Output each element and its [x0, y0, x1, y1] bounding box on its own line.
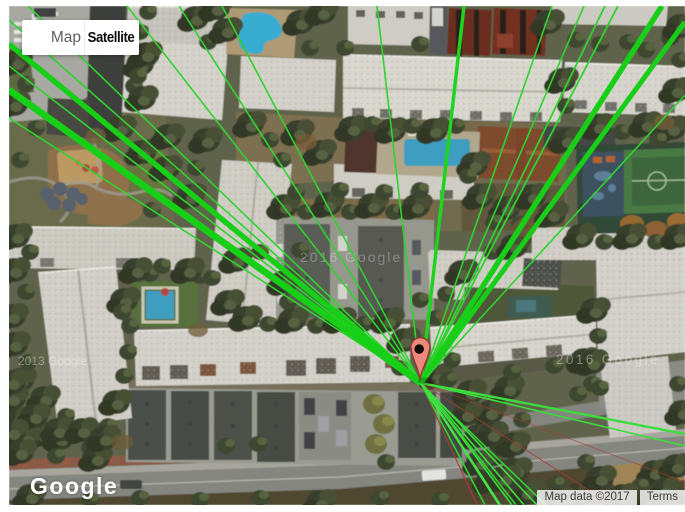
- svg-text:2013 Google: 2013 Google: [18, 354, 87, 368]
- svg-text:2016 Google: 2016 Google: [556, 352, 660, 367]
